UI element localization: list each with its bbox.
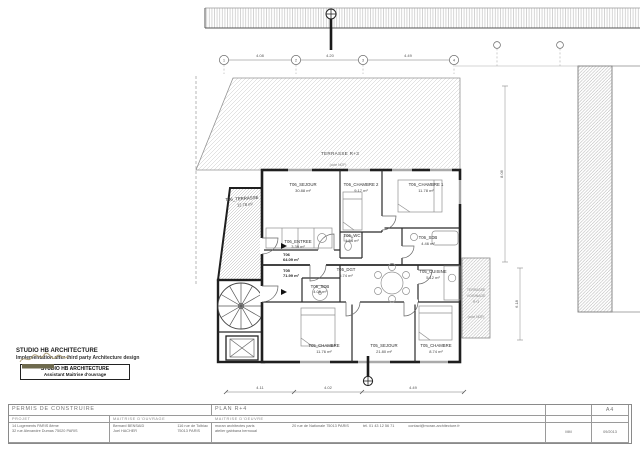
- room-label: T06_CHAMBRE 2: [344, 182, 379, 187]
- neighbour-building: [578, 66, 640, 312]
- dimension-value: 6.18: [514, 299, 519, 308]
- room-label: T05_CHAMBRE: [308, 343, 339, 348]
- projet-label: PROJET: [9, 416, 110, 423]
- room-label: T05_CUISINE: [419, 269, 446, 274]
- moe-contact: 20 rue de Nationale 75013 PARIS tél. 01 …: [289, 423, 546, 443]
- room-label: T05_DGT: [337, 267, 356, 272]
- terrasse-voisinage-label: TERRASSE: [467, 288, 486, 292]
- mo-name1: Bernard BENSAID: [113, 424, 144, 429]
- room-area: 5.74 m²: [339, 273, 353, 278]
- title-block-plan-name: PLAN R+4: [212, 405, 546, 416]
- title-block-empty: [546, 416, 592, 423]
- terrasse-r3-label: TERRASSE R+3: [321, 151, 359, 156]
- grid-dimension-line-top: 1 2 3 4 4.08 4.20 4.49: [219, 53, 458, 74]
- unit-tag-area: 71.99 m²: [283, 273, 300, 278]
- moe-address: 20 rue de Nationale 75013 PARIS: [292, 424, 349, 429]
- room-area: 4.05 m²: [313, 289, 327, 294]
- title-block-ref: MM: [546, 423, 592, 443]
- room-area: 1.54 m²: [345, 238, 359, 243]
- maitrise-ouvrage-label: MAITRISE D'OUVRAGE: [110, 416, 212, 423]
- terrasse-r3-zone: TERRASSE R+3 (cote NGF): [196, 78, 460, 170]
- dimension-value: 4.11: [256, 385, 264, 390]
- room-label: T06_SDB: [419, 235, 438, 240]
- room-area: 30.88 m²: [295, 188, 311, 193]
- title-block: PERMIS DE CONSTRUIRE PLAN R+4 A4 PROJET …: [8, 404, 632, 444]
- maitrise-ouvrage-info: Bernard BENSAID Joel HACHER 116 rue de T…: [110, 423, 212, 443]
- grid-bubble: 4: [453, 59, 455, 63]
- terrasse-voisinage-label: VOISINAGE: [467, 294, 486, 298]
- room-area: 3.39 m²: [291, 244, 305, 249]
- room-area: 9.17 m²: [354, 188, 368, 193]
- title-block-empty: [546, 405, 592, 416]
- floor-plan-drawing: 1 2 3 4 4.08 4.20 4.49 TERRASSE R+3 (cot…: [0, 0, 640, 452]
- grid-bubble: 1: [223, 59, 225, 63]
- studio-logo-mark: [18, 350, 78, 370]
- moe-email: contact@moran-architecture.fr: [408, 424, 459, 429]
- room-area: 11.78 m²: [418, 188, 434, 193]
- mo-address2: 75013 PARIS: [177, 429, 208, 434]
- floor-plan-sheet: 1 2 3 4 4.08 4.20 4.49 TERRASSE R+3 (cot…: [0, 0, 640, 452]
- dimension-value: 4.20: [326, 53, 335, 58]
- room-area: 11.76 m²: [316, 349, 332, 354]
- room-label: T06_CHAMBRE 1: [409, 182, 444, 187]
- moe-phone: tél. 01 43 12 56 71: [363, 424, 394, 429]
- room-label: T05_SEJOUR: [370, 343, 397, 348]
- section-marker-north-icon: [326, 9, 336, 50]
- title-block-permit: PERMIS DE CONSTRUIRE: [9, 405, 212, 416]
- maitrise-oeuvre-info: moran architectes paris atelier gabbana …: [212, 423, 289, 443]
- dimension-value: 8.06: [499, 169, 504, 178]
- dimension-line-bottom: 4.11 4.02 4.49: [224, 385, 466, 394]
- title-block-date: 09/2013: [592, 423, 629, 443]
- terrasse-voisinage-label: R+3: [473, 300, 479, 304]
- dimension-line-right: 8.06 6.18: [499, 86, 523, 340]
- room-area: 21.80 m²: [376, 349, 392, 354]
- title-block-format: A4: [592, 405, 629, 416]
- room-area: 8.74 m²: [429, 349, 443, 354]
- room-label: T05_CHAMBRE: [420, 343, 451, 348]
- projet-line2: 32 rue Alexandre Dumas 75020 PARIS: [12, 429, 106, 434]
- stamp-line2: Assistant Maitrise d'ouvrage: [23, 372, 127, 378]
- dimension-value: 4.02: [324, 385, 333, 390]
- survey-marker-icon: [455, 42, 580, 66]
- moe-name2: atelier gabbana bernoual: [215, 429, 286, 434]
- title-block-empty: [592, 416, 629, 423]
- dimension-value: 4.49: [409, 385, 418, 390]
- architect-annotation: STUDIO HB ARCHITECTURE Implementation af…: [16, 348, 206, 380]
- street-hatch-strip: [205, 8, 640, 28]
- dimension-value: 4.08: [256, 53, 265, 58]
- terrasse-voisinage-sublabel: (cote NGF): [468, 315, 485, 319]
- room-area: 4.46 m²: [421, 241, 435, 246]
- elevator: [226, 336, 258, 360]
- grid-bubble: 3: [362, 59, 364, 63]
- terrasse-r3-sublabel: (cote NGF): [330, 163, 347, 167]
- mo-name2: Joel HACHER: [113, 429, 144, 434]
- grid-bubble: 2: [295, 59, 297, 63]
- room-area: 5.12 m²: [426, 275, 440, 280]
- terrasse-voisinage-zone: TERRASSE VOISINAGE R+3 (cote NGF): [462, 258, 490, 338]
- dimension-value: 4.49: [404, 53, 413, 58]
- projet-info: 14 Logements PARIS 8ème 32 rue Alexandre…: [9, 423, 110, 443]
- mo-address1: 116 rue de Tolbiac: [177, 424, 208, 429]
- maitrise-oeuvre-label: MAITRISE D'OEUVRE: [212, 416, 546, 423]
- spiral-staircase: [218, 283, 264, 329]
- unit-tag-area: 64.09 m²: [283, 257, 300, 262]
- room-label: T06_SEJOUR: [289, 182, 316, 187]
